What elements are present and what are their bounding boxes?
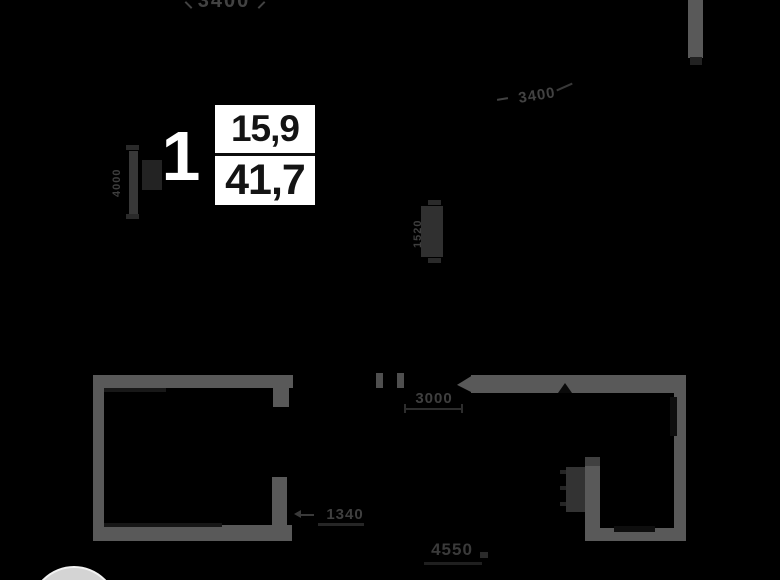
dimension-label-bottom-center: 4550 <box>420 540 484 560</box>
wall-left-room-left <box>93 375 104 541</box>
dimension-arrowhead-bottom-left <box>294 510 301 518</box>
floor-plan-canvas: 3400 3400 1 15,9 41,7 4000 1520 3000 <box>0 0 780 580</box>
dimension-tick-middle-left <box>404 404 406 413</box>
door-tick-3 <box>560 502 566 506</box>
dimension-bar-left <box>129 151 138 215</box>
wall-left-room-right-lower <box>272 477 287 541</box>
door-tick-1 <box>560 470 566 474</box>
dimension-cap-middle-bottom <box>428 258 441 263</box>
dimension-tick-middle-right <box>461 404 463 413</box>
wall-stub-doorway-left <box>376 373 383 388</box>
dimension-arrow-line-bottom-left <box>300 514 314 516</box>
wall-segment-top-right <box>688 0 703 58</box>
wall-right-room-left-lower <box>585 457 600 541</box>
wall-left-room-bottom <box>93 525 292 541</box>
window-marker-left-room-top <box>104 388 166 392</box>
wall-joint-top-right <box>690 57 702 65</box>
wall-stub-doorway-right <box>397 373 404 388</box>
living-area-value: 15,9 <box>215 105 315 153</box>
area-info-card: 15,9 41,7 <box>215 105 315 205</box>
door-leaf <box>566 467 585 512</box>
dimension-underline-bottom-left <box>318 523 364 526</box>
dimension-cap-middle-top <box>428 200 441 205</box>
dimension-tail-bottom-center <box>480 552 488 558</box>
door-tick-2 <box>560 486 566 490</box>
total-area-value: 41,7 <box>215 156 315 205</box>
window-marker-right-wall <box>670 397 677 436</box>
dimension-line-middle <box>405 408 463 410</box>
dimension-underline-bottom-center <box>424 562 482 565</box>
wall-left-room-right-upper <box>273 375 289 407</box>
window-marker-bottom-wall <box>614 526 655 532</box>
dimension-cap-left-bottom <box>126 214 139 219</box>
dimension-cap-left-top <box>126 145 139 150</box>
door-direction-marker <box>558 383 572 393</box>
column-circle <box>30 566 118 580</box>
dimension-bar-left-faint <box>142 160 162 190</box>
wall-right-room-top <box>471 375 686 393</box>
dimension-label-middle-horizontal: 3000 <box>404 390 464 407</box>
wall-left-room-top <box>93 375 293 388</box>
dimension-bar-middle <box>421 206 443 257</box>
wall-cap-right-room <box>585 457 600 466</box>
window-marker-left-room-bottom <box>104 523 222 527</box>
dimension-label-bottom-left: 1340 <box>316 506 374 523</box>
dimension-label-left-vertical: 4000 <box>111 147 127 219</box>
